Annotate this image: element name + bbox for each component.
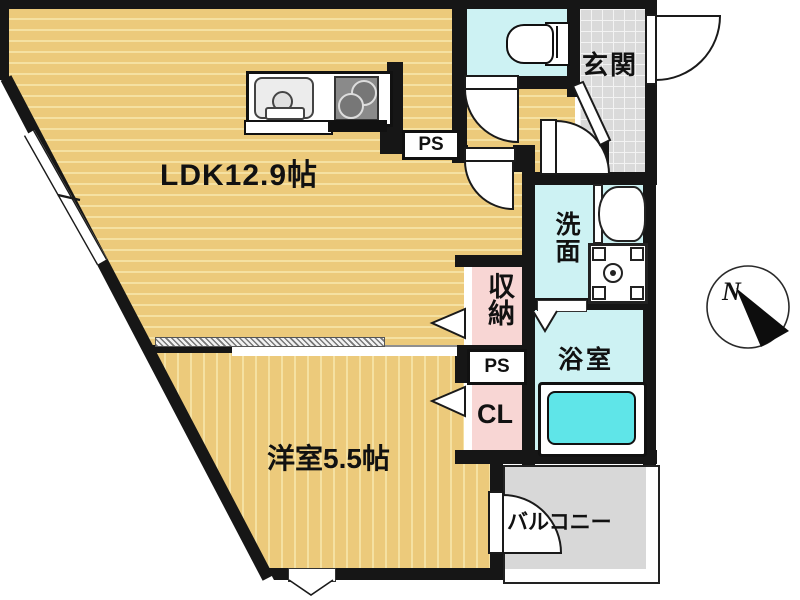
washroom-label: 洗面 [548, 211, 584, 265]
compass-north-label: N [721, 277, 742, 306]
entrance-label: 玄関 [582, 45, 638, 82]
pipe-space-lower: PS [467, 349, 527, 385]
front-door [646, 15, 720, 84]
hallway-door [465, 148, 515, 209]
storage-opening-arrow [432, 309, 465, 338]
storage-label: 収納 [480, 272, 519, 326]
bathroom-door-marker [533, 311, 557, 331]
pipe-space-upper: PS [402, 130, 460, 160]
bottom-window-marker [289, 580, 333, 595]
plan-overlay: N [0, 0, 800, 600]
ldk-label: LDK12.9帖 [160, 150, 318, 194]
closet-label: CL [477, 399, 513, 430]
western-room-label: 洋室5.5帖 [267, 437, 390, 477]
bathroom-label: 浴室 [558, 340, 614, 376]
floor-plan: { "plan_title": "1LDK apartment floor pl… [0, 0, 800, 600]
pipe-space-lower-label: PS [484, 356, 509, 378]
balcony-label: バルコニー [507, 506, 612, 536]
compass: N [707, 266, 789, 348]
toilet-door [465, 76, 518, 142]
closet-opening-arrow [432, 387, 465, 416]
pipe-space-upper-label: PS [418, 134, 443, 156]
